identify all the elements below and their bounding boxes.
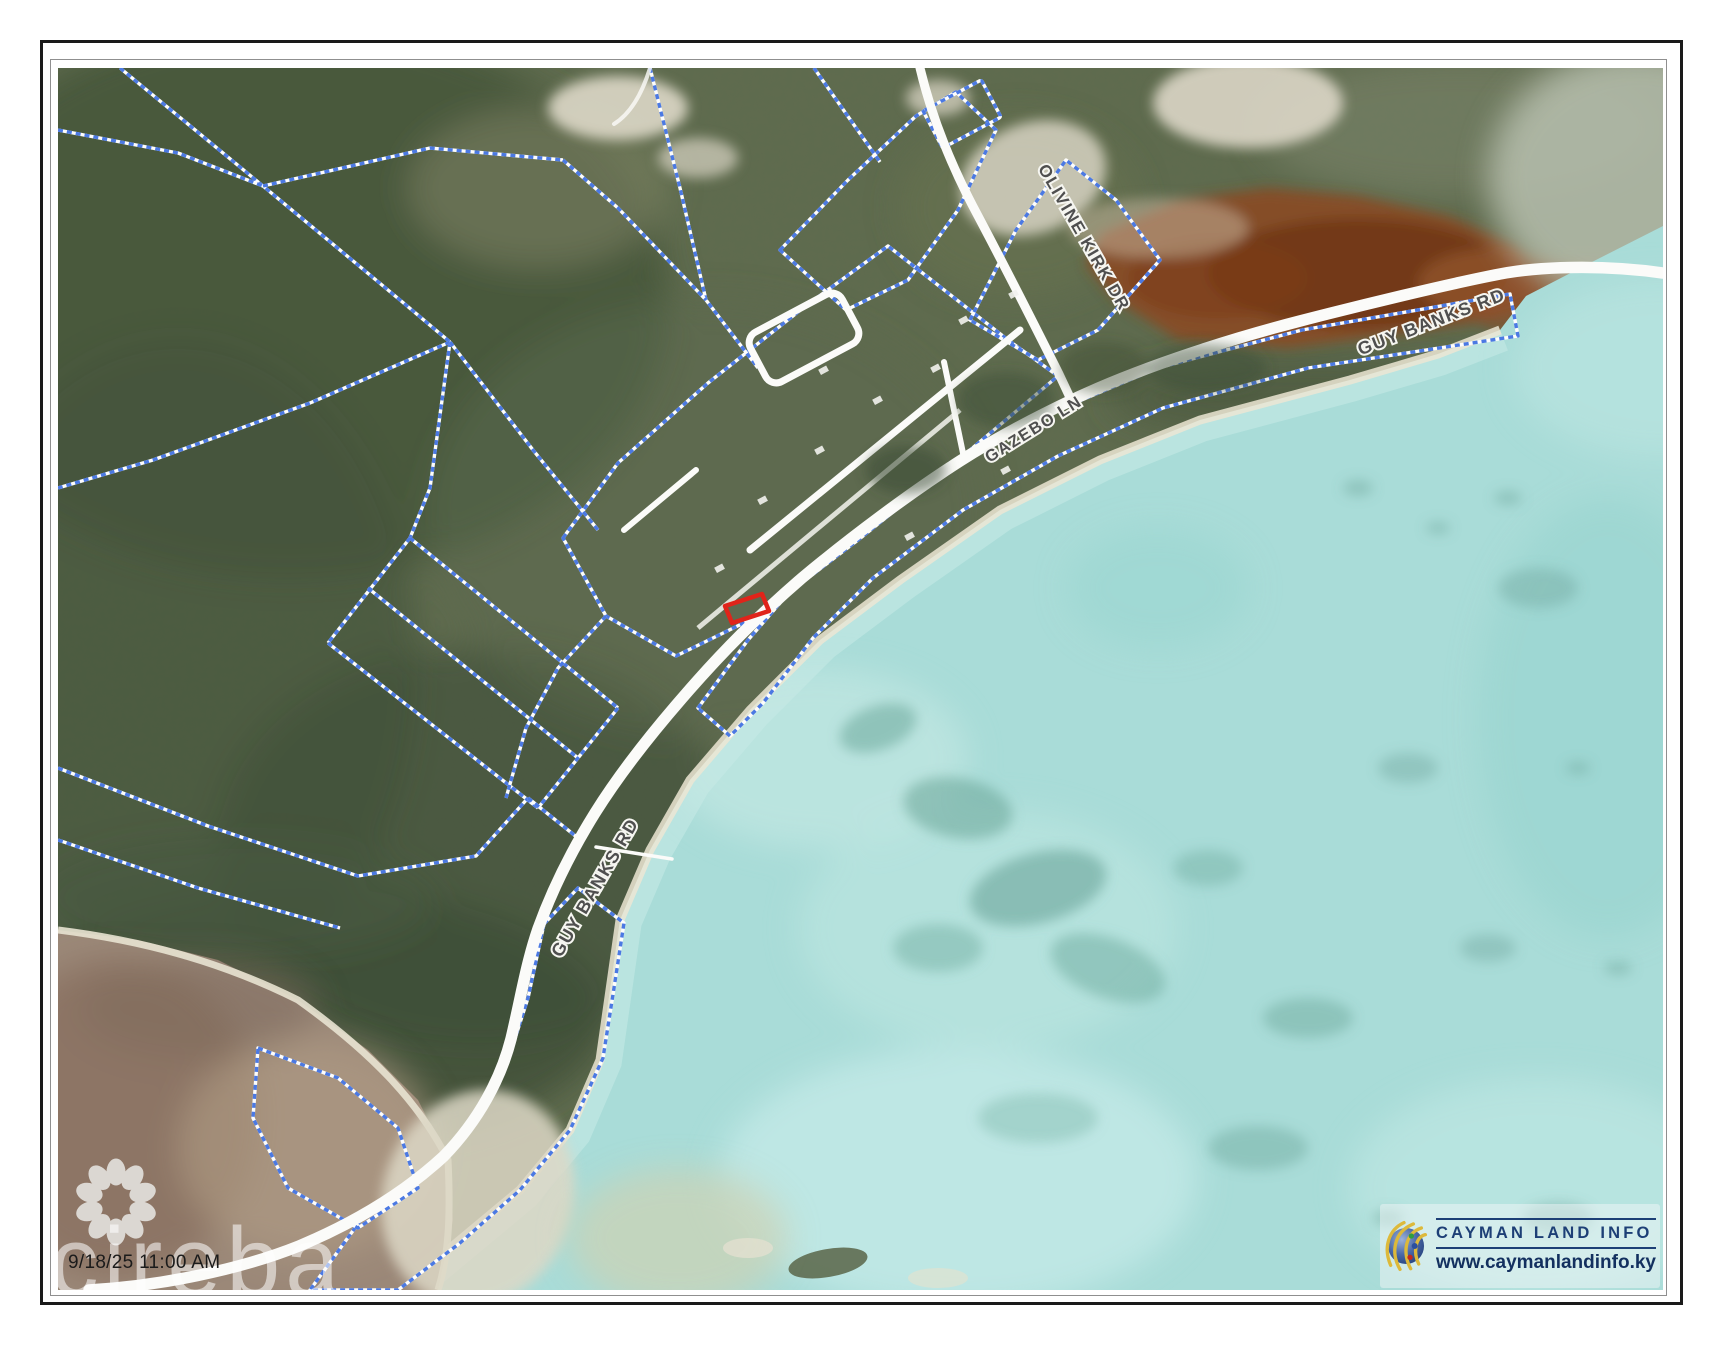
globe-icon (1384, 1209, 1428, 1283)
satellite-basemap: OLIVINE KIRK DR GUY BANKS RD GAZEBO LN G… (58, 68, 1663, 1290)
logo-website: www.caymanlandinfo.ky (1436, 1252, 1656, 1274)
map-canvas[interactable]: OLIVINE KIRK DR GUY BANKS RD GAZEBO LN G… (58, 68, 1663, 1290)
logo-divider-top (1436, 1218, 1656, 1220)
map-print-page: OLIVINE KIRK DR GUY BANKS RD GAZEBO LN G… (0, 0, 1721, 1350)
logo-divider-bottom (1436, 1247, 1656, 1249)
logo-title: CAYMAN LAND INFO (1436, 1224, 1656, 1243)
cayman-land-info-logo: CAYMAN LAND INFO www.caymanlandinfo.ky (1380, 1204, 1660, 1288)
timestamp: 9/18/25 11:00 AM (68, 1252, 220, 1274)
